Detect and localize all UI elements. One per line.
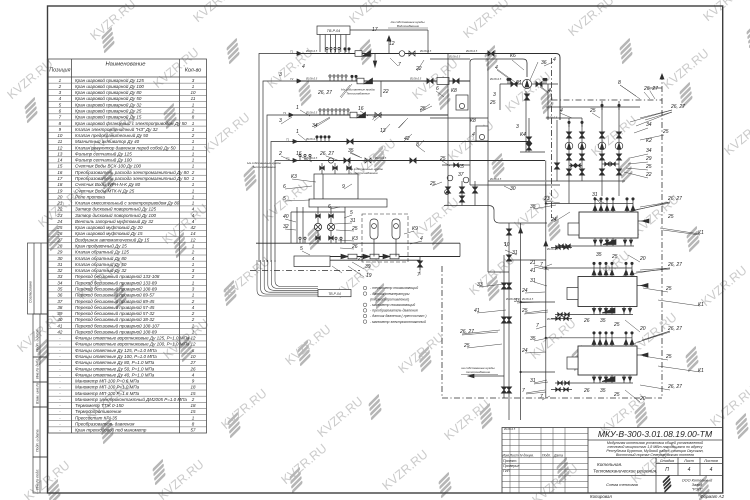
svg-text:25: 25 bbox=[56, 225, 63, 230]
svg-text:7: 7 bbox=[398, 62, 401, 68]
svg-text:(термосопротивление): (термосопротивление) bbox=[370, 297, 409, 301]
svg-text:Клапан регулятор давления пере: Клапан регулятор давления перед собой Ду… bbox=[75, 144, 176, 150]
svg-text:Ø108x3.5: Ø108x3.5 bbox=[503, 427, 516, 431]
svg-text:Счетчик Воды ВСХ-100 Ду 100: Счетчик Воды ВСХ-100 Ду 100 bbox=[75, 164, 141, 169]
svg-text:К2: К2 bbox=[646, 138, 652, 144]
svg-text:Фланцы ответные Ду 100, Р=1.0: Фланцы ответные Ду 100, Р=1.0 МПа bbox=[75, 354, 157, 359]
svg-text:1: 1 bbox=[192, 182, 195, 187]
svg-text:42: 42 bbox=[57, 329, 63, 334]
svg-text:25: 25 bbox=[521, 308, 528, 314]
svg-text:Магнитный активатор Ду 40: Магнитный активатор Ду 40 bbox=[75, 138, 140, 144]
svg-text:33: 33 bbox=[477, 282, 483, 288]
svg-text:-: - bbox=[59, 428, 61, 433]
svg-text:3: 3 bbox=[192, 286, 195, 291]
svg-text:-: - bbox=[59, 342, 61, 347]
svg-text:6: 6 bbox=[192, 348, 195, 353]
svg-text:21: 21 bbox=[529, 260, 536, 266]
svg-text:Кран продувочный Ду 25: Кран продувочный Ду 25 bbox=[75, 243, 127, 249]
svg-text:ООО Котельный: ООО Котельный bbox=[682, 479, 713, 483]
svg-text:39: 39 bbox=[57, 311, 63, 316]
svg-text:26, 27: 26, 27 bbox=[667, 384, 682, 390]
svg-text:2: 2 bbox=[191, 170, 195, 175]
svg-text:Переход бесшовный приварной 1: Переход бесшовный приварной 108-107 bbox=[75, 322, 160, 328]
svg-text:Переход бесшовный приварной 1: Переход бесшовный приварной 108-89 bbox=[75, 285, 157, 291]
svg-text:Изм.Лист: Изм.Лист bbox=[503, 454, 519, 458]
svg-text:2: 2 bbox=[191, 397, 195, 402]
svg-text:Ø108x3.5: Ø108x3.5 bbox=[521, 297, 534, 301]
svg-text:К8: К8 bbox=[470, 118, 476, 124]
svg-text:31: 31 bbox=[592, 192, 598, 198]
svg-text:30: 30 bbox=[57, 256, 63, 261]
svg-text:8: 8 bbox=[416, 142, 419, 148]
svg-text:26: 26 bbox=[189, 366, 196, 371]
svg-text:Ø108x3.5: Ø108x3.5 bbox=[305, 137, 318, 141]
svg-text:26, 27: 26, 27 bbox=[317, 90, 332, 96]
svg-text:-: - bbox=[59, 409, 61, 414]
svg-text:- датчик давления ( прессоста: - датчик давления ( прессостат ) bbox=[370, 314, 427, 318]
svg-text:Ø108x3.5: Ø108x3.5 bbox=[546, 317, 559, 321]
svg-text:Тепломеханические решения.: Тепломеханические решения. bbox=[593, 469, 657, 474]
svg-text:25: 25 bbox=[665, 286, 672, 292]
svg-text:К8: К8 bbox=[451, 88, 457, 94]
svg-text:35: 35 bbox=[57, 286, 63, 291]
svg-text:35: 35 bbox=[600, 318, 606, 324]
svg-text:16: 16 bbox=[358, 106, 364, 112]
svg-text:41: 41 bbox=[474, 308, 480, 314]
svg-text:Клапан обратный Ду 32: Клапан обратный Ду 32 bbox=[75, 267, 127, 273]
svg-text:35: 35 bbox=[600, 388, 606, 394]
svg-text:21: 21 bbox=[56, 201, 63, 206]
svg-text:Счетчик Воды WPH-N-K Ду 80: Счетчик Воды WPH-N-K Ду 80 bbox=[75, 182, 141, 187]
svg-text:Ø108x3.5: Ø108x3.5 bbox=[305, 77, 318, 81]
svg-text:25: 25 bbox=[662, 129, 669, 135]
svg-text:26, 27: 26, 27 bbox=[319, 151, 334, 157]
svg-text:Переход бесшовный приварной 1: Переход бесшовный приварной 108-89 bbox=[75, 328, 157, 334]
svg-text:Кран шаровой приварной Ду 25: Кран шаровой приварной Ду 25 bbox=[75, 107, 142, 113]
svg-text:Инв.№ подл.: Инв.№ подл. bbox=[36, 469, 40, 490]
svg-text:19: 19 bbox=[57, 188, 63, 193]
svg-text:23: 23 bbox=[56, 213, 63, 218]
svg-text:Восточный портал Северомуйског: Восточный портал Северомуйского тоннеля bbox=[616, 453, 694, 457]
svg-text:35: 35 bbox=[596, 252, 602, 258]
svg-text:26, 27: 26, 27 bbox=[670, 104, 685, 110]
svg-text:Наименование: Наименование bbox=[105, 62, 146, 68]
svg-text:-: - bbox=[59, 360, 61, 365]
svg-text:Переход бесшовный приварной 8: Переход бесшовный приварной 89-57 bbox=[75, 292, 155, 298]
svg-text:31: 31 bbox=[350, 218, 356, 224]
svg-text:22: 22 bbox=[645, 172, 652, 178]
svg-text:4: 4 bbox=[688, 467, 691, 473]
svg-text:1: 1 bbox=[296, 105, 299, 111]
svg-text:25: 25 bbox=[419, 106, 426, 112]
svg-text:К3: К3 bbox=[352, 236, 358, 242]
svg-text:1: 1 bbox=[192, 194, 195, 199]
svg-text:Согласовано: Согласовано bbox=[29, 281, 33, 303]
svg-text:57: 57 bbox=[190, 428, 196, 433]
svg-text:1: 1 bbox=[192, 188, 195, 193]
svg-text:21: 21 bbox=[515, 80, 522, 86]
svg-text:Кран шаровой приварной Ду 15: Кран шаровой приварной Ду 15 bbox=[75, 114, 142, 120]
svg-text:24: 24 bbox=[550, 217, 557, 223]
svg-text:Прессостат КРI-35: Прессостат КРI-35 bbox=[75, 415, 118, 420]
svg-text:7: 7 bbox=[540, 262, 543, 268]
svg-text:Манометр электроконтактный ДМ2: Манометр электроконтактный ДМ2005 Р=1.0 … bbox=[75, 396, 187, 402]
svg-text:7: 7 bbox=[522, 388, 525, 394]
svg-text:-: - bbox=[59, 415, 61, 420]
svg-text:Манометр МП-100 Р=1.6 МПа: Манометр МП-100 Р=1.6 МПа bbox=[75, 391, 140, 396]
svg-text:Кол-во: Кол-во bbox=[185, 68, 202, 74]
svg-text:-: - bbox=[59, 385, 61, 390]
svg-text:Ø108x3.5: Ø108x3.5 bbox=[305, 156, 318, 160]
svg-text:2: 2 bbox=[191, 317, 195, 322]
svg-text:ТВ-Р-04: ТВ-Р-04 bbox=[327, 29, 340, 33]
svg-text:7: 7 bbox=[540, 394, 543, 400]
svg-text:Ø108x3.5: Ø108x3.5 bbox=[465, 49, 478, 53]
svg-text:4: 4 bbox=[192, 372, 195, 377]
svg-text:Клапан смесительный с электроп: Клапан смесительный с электроприводом Ду… bbox=[75, 200, 180, 206]
svg-text:22: 22 bbox=[56, 207, 63, 212]
svg-text:Кран шаровой фланцевый с элект: Кран шаровой фланцевый с электроприводом… bbox=[75, 120, 187, 126]
svg-text:10: 10 bbox=[190, 354, 196, 359]
svg-text:- термометр показывающий: - термометр показывающий bbox=[370, 286, 418, 290]
svg-text:25: 25 bbox=[463, 343, 470, 349]
svg-text:Инв.№ дубл.: Инв.№ дубл. bbox=[36, 358, 40, 379]
svg-text:41: 41 bbox=[57, 323, 63, 328]
svg-text:Лист: Лист bbox=[683, 459, 694, 463]
svg-text:26, 27: 26, 27 bbox=[667, 196, 682, 202]
svg-text:4: 4 bbox=[420, 236, 423, 242]
svg-text:36: 36 bbox=[57, 293, 63, 298]
svg-text:6: 6 bbox=[59, 108, 62, 113]
svg-text:2: 2 bbox=[191, 133, 195, 138]
svg-text:Листов: Листов bbox=[703, 459, 718, 463]
svg-text:3: 3 bbox=[59, 90, 62, 95]
svg-text:31: 31 bbox=[530, 278, 536, 284]
svg-text:32: 32 bbox=[283, 224, 289, 230]
svg-text:8: 8 bbox=[618, 80, 621, 86]
svg-text:-: - bbox=[59, 379, 61, 384]
svg-text:3: 3 bbox=[516, 124, 519, 130]
svg-text:11: 11 bbox=[58, 139, 63, 144]
svg-text:Реле протока: Реле протока bbox=[75, 194, 105, 199]
svg-text:Водоснабжение: Водоснабжение bbox=[397, 24, 420, 28]
svg-text:Т1: Т1 bbox=[286, 138, 290, 142]
svg-text:34: 34 bbox=[646, 122, 652, 128]
svg-text:4: 4 bbox=[548, 88, 551, 94]
svg-text:22: 22 bbox=[382, 89, 389, 95]
svg-text:1: 1 bbox=[192, 84, 195, 89]
svg-text:К3: К3 bbox=[291, 174, 297, 180]
svg-text:40: 40 bbox=[283, 214, 289, 220]
svg-text:Кран шаровой приварной Ду 80: Кран шаровой приварной Ду 80 bbox=[75, 89, 142, 95]
svg-text:26: 26 bbox=[583, 318, 590, 324]
svg-text:Термометр ТТЖ 0-150: Термометр ТТЖ 0-150 bbox=[75, 403, 124, 408]
svg-text:Ø108x3.5: Ø108x3.5 bbox=[505, 297, 518, 301]
svg-text:1: 1 bbox=[192, 293, 195, 298]
svg-text:N докум.: N докум. bbox=[520, 454, 534, 458]
svg-text:К1: К1 bbox=[698, 302, 704, 308]
svg-text:13: 13 bbox=[380, 128, 386, 134]
svg-text:Фланцы ответные воротниковые Д: Фланцы ответные воротниковые Ду 125, Р=1… bbox=[75, 336, 190, 341]
svg-text:2: 2 bbox=[191, 274, 195, 279]
svg-text:13: 13 bbox=[57, 151, 63, 156]
svg-text:3: 3 bbox=[192, 268, 195, 273]
svg-text:24: 24 bbox=[56, 219, 63, 224]
svg-text:1: 1 bbox=[192, 127, 195, 132]
svg-text:7: 7 bbox=[372, 116, 375, 122]
svg-text:15: 15 bbox=[57, 164, 63, 169]
svg-text:3: 3 bbox=[279, 72, 282, 78]
svg-text:-: - bbox=[59, 348, 61, 353]
svg-text:36: 36 bbox=[541, 60, 547, 66]
svg-text:26: 26 bbox=[583, 388, 590, 394]
svg-text:Кран шаровой муфтовый Ду 20: Кран шаровой муфтовый Ду 20 bbox=[75, 224, 143, 230]
svg-text:Стадия: Стадия bbox=[660, 459, 674, 463]
svg-text:35: 35 bbox=[530, 336, 536, 342]
svg-text:14: 14 bbox=[190, 231, 196, 236]
svg-text:1: 1 bbox=[192, 201, 195, 206]
svg-text:Клапан предохранительный Ду 50: Клапан предохранительный Ду 50 bbox=[75, 132, 149, 138]
svg-text:1: 1 bbox=[192, 164, 195, 169]
svg-text:Теплоснабжение: Теплоснабжение bbox=[252, 165, 276, 169]
svg-text:33: 33 bbox=[57, 274, 63, 279]
svg-text:1: 1 bbox=[192, 415, 195, 420]
svg-text:Ø108x3.5: Ø108x3.5 bbox=[545, 116, 558, 120]
svg-text:- преобразователь давления: - преобразователь давления bbox=[370, 309, 418, 313]
svg-text:Воздушник автоматический Ду 15: Воздушник автоматический Ду 15 bbox=[75, 236, 150, 242]
svg-text:10: 10 bbox=[57, 133, 63, 138]
svg-text:25: 25 bbox=[667, 214, 674, 220]
svg-text:15: 15 bbox=[190, 409, 196, 414]
svg-text:1: 1 bbox=[192, 121, 195, 126]
svg-text:Формат А2: Формат А2 bbox=[700, 494, 725, 499]
svg-text:26, 27: 26, 27 bbox=[667, 262, 682, 268]
svg-text:4: 4 bbox=[710, 467, 713, 473]
svg-text:25: 25 bbox=[665, 354, 672, 360]
svg-text:Манометр МП-100 Р=1.0 МПа: Манометр МП-100 Р=1.0 МПа bbox=[75, 385, 140, 390]
svg-text:Фланцы ответные Ду 80, Р=1.0 М: Фланцы ответные Ду 80, Р=1.0 МПа bbox=[75, 360, 155, 365]
svg-text:25: 25 bbox=[489, 100, 496, 106]
svg-text:1: 1 bbox=[192, 158, 195, 163]
svg-text:34: 34 bbox=[57, 280, 63, 285]
svg-text:Взам. инв.№: Взам. инв.№ bbox=[36, 383, 40, 404]
svg-text:2: 2 bbox=[278, 151, 282, 157]
svg-text:4: 4 bbox=[495, 65, 498, 71]
svg-text:Термосопротивление: Термосопротивление bbox=[75, 409, 122, 414]
svg-text:Фильтр сетчатый Ду 125: Фильтр сетчатый Ду 125 bbox=[75, 150, 132, 156]
svg-text:1: 1 bbox=[192, 151, 195, 156]
svg-text:1: 1 bbox=[192, 262, 195, 267]
svg-text:26: 26 bbox=[56, 231, 63, 236]
svg-text:12: 12 bbox=[389, 41, 395, 47]
svg-text:6: 6 bbox=[283, 184, 286, 190]
svg-text:Ø108x3.5: Ø108x3.5 bbox=[305, 111, 318, 115]
svg-text:Копировал: Копировал bbox=[590, 494, 612, 499]
svg-text:Переход бесшовный приварной 3: Переход бесшовный приварной 38-32 bbox=[75, 316, 155, 322]
svg-text:26, 27: 26, 27 bbox=[459, 329, 474, 335]
svg-text:Подп. и дата: Подп. и дата bbox=[36, 330, 40, 353]
svg-text:Ø108x3.5: Ø108x3.5 bbox=[489, 177, 502, 181]
svg-text:17: 17 bbox=[57, 176, 63, 181]
svg-text:9: 9 bbox=[342, 184, 345, 190]
svg-text:Т1: Т1 bbox=[283, 111, 287, 115]
svg-text:МКУ-В-300-3.01.08.19.00-ТМ: МКУ-В-300-3.01.08.19.00-ТМ bbox=[598, 429, 713, 439]
svg-text:Фланцы ответные Ду 125, Р=1.0: Фланцы ответные Ду 125, Р=1.0 МПа bbox=[75, 348, 157, 353]
svg-text:18: 18 bbox=[57, 182, 63, 187]
svg-text:Кран шаровой муфтовый Ду 15: Кран шаровой муфтовый Ду 15 bbox=[75, 230, 143, 236]
svg-text:Подп.: Подп. bbox=[542, 454, 551, 458]
svg-text:Переход бесшовный приварной 5: Переход бесшовный приварной 57-32 bbox=[75, 310, 155, 316]
svg-text:-: - bbox=[59, 336, 61, 341]
svg-text:Преобразователь давления: Преобразователь давления bbox=[75, 422, 135, 427]
svg-text:К5: К5 bbox=[458, 164, 464, 170]
svg-text:теплоснабжение: теплоснабжение bbox=[466, 370, 491, 374]
svg-text:Т1: Т1 bbox=[290, 50, 294, 54]
svg-text:15: 15 bbox=[190, 391, 196, 396]
svg-text:2: 2 bbox=[58, 84, 62, 89]
svg-text:6: 6 bbox=[328, 204, 331, 210]
svg-text:Схема тепловая: Схема тепловая bbox=[606, 482, 639, 487]
svg-text:ГИП: ГИП bbox=[503, 469, 511, 473]
svg-text:24: 24 bbox=[521, 288, 528, 294]
svg-text:-: - bbox=[59, 422, 61, 427]
svg-text:Ø108x3.5: Ø108x3.5 bbox=[419, 49, 432, 53]
svg-text:25: 25 bbox=[613, 322, 620, 328]
svg-text:4: 4 bbox=[192, 305, 195, 310]
svg-text:12: 12 bbox=[57, 145, 63, 150]
svg-text:30: 30 bbox=[510, 186, 516, 192]
svg-text:7: 7 bbox=[536, 323, 539, 329]
svg-text:-: - bbox=[59, 397, 61, 402]
svg-text:27: 27 bbox=[56, 237, 63, 242]
svg-text:12: 12 bbox=[190, 342, 196, 347]
svg-text:1: 1 bbox=[192, 102, 195, 107]
svg-text:-: - bbox=[59, 403, 61, 408]
svg-text:1: 1 bbox=[192, 280, 195, 285]
svg-text:Затвор дисковый поворотный Ду: Затвор дисковый поворотный Ду 100 bbox=[75, 212, 157, 218]
svg-text:40: 40 bbox=[57, 317, 63, 322]
svg-text:24: 24 bbox=[521, 348, 528, 354]
svg-text:4: 4 bbox=[560, 108, 563, 114]
svg-text:2: 2 bbox=[191, 250, 195, 255]
svg-text:Проект.: Проект. bbox=[503, 459, 517, 463]
svg-text:4: 4 bbox=[553, 57, 556, 63]
svg-text:Проверил: Проверил bbox=[503, 464, 519, 468]
svg-text:П: П bbox=[665, 467, 669, 473]
svg-text:Фланцы ответные Ду 40, Р=1.0 М: Фланцы ответные Ду 40, Р=1.0 МПа bbox=[75, 372, 155, 377]
svg-text:Затвор дисковый поворотный Ду: Затвор дисковый поворотный Ду 125 bbox=[75, 206, 157, 212]
svg-text:25: 25 bbox=[645, 164, 652, 170]
svg-text:Переход бесшовный приварной 8: Переход бесшовный приварной 89-45 bbox=[75, 298, 155, 304]
svg-text:31: 31 bbox=[530, 378, 536, 384]
svg-text:28: 28 bbox=[56, 244, 63, 249]
svg-text:38: 38 bbox=[57, 305, 63, 310]
svg-text:Переход бесшовный приварной 5: Переход бесшовный приварной 57-45 bbox=[75, 304, 155, 310]
svg-text:5: 5 bbox=[350, 210, 353, 216]
svg-text:35: 35 bbox=[348, 148, 354, 154]
svg-text:2: 2 bbox=[191, 108, 195, 113]
svg-text:25: 25 bbox=[351, 226, 358, 232]
svg-text:3: 3 bbox=[192, 78, 195, 83]
svg-text:Клапан электромагнитный "НЗ" Д: Клапан электромагнитный "НЗ" Ду 32 bbox=[75, 126, 158, 132]
svg-text:-: - bbox=[59, 372, 61, 377]
svg-text:5: 5 bbox=[283, 196, 286, 202]
svg-text:4: 4 bbox=[472, 132, 475, 138]
svg-text:2: 2 bbox=[191, 299, 195, 304]
svg-text:8: 8 bbox=[192, 115, 195, 120]
svg-text:12: 12 bbox=[190, 336, 196, 341]
svg-text:Манометр МП-100 Р=0.6 МПа: Манометр МП-100 Р=0.6 МПа bbox=[75, 379, 140, 384]
svg-text:1: 1 bbox=[192, 244, 195, 249]
svg-text:-: - bbox=[59, 366, 61, 371]
svg-text:4: 4 bbox=[59, 96, 62, 101]
svg-text:25: 25 bbox=[439, 156, 446, 162]
svg-text:Вентиль запорный муфтовый Ду 3: Вентиль запорный муфтовый Ду 32 bbox=[75, 218, 154, 224]
svg-text:10: 10 bbox=[190, 90, 196, 95]
svg-text:-: - bbox=[59, 391, 61, 396]
svg-text:10: 10 bbox=[504, 242, 510, 248]
svg-text:32: 32 bbox=[57, 268, 63, 273]
svg-text:Фланцы ответные воротниковые Д: Фланцы ответные воротниковые Ду 100, Р=1… bbox=[75, 342, 190, 347]
svg-text:К6: К6 bbox=[510, 53, 516, 59]
svg-text:-: - bbox=[59, 354, 61, 359]
svg-text:34: 34 bbox=[312, 123, 318, 129]
svg-text:23: 23 bbox=[543, 196, 550, 202]
svg-text:2: 2 bbox=[191, 323, 195, 328]
svg-text:Ø108x3.5: Ø108x3.5 bbox=[305, 49, 318, 53]
svg-text:26, 27: 26, 27 bbox=[667, 326, 682, 332]
svg-text:Т2: Т2 bbox=[290, 77, 294, 81]
svg-text:Ø108x3.5: Ø108x3.5 bbox=[374, 156, 387, 160]
svg-text:29: 29 bbox=[56, 250, 63, 255]
svg-text:37: 37 bbox=[458, 172, 464, 178]
svg-text:5: 5 bbox=[300, 246, 303, 252]
svg-text:Счетчик Воды МТК-N Ду 25: Счетчик Воды МТК-N Ду 25 bbox=[75, 188, 135, 193]
svg-text:Преобразователь расхода электр: Преобразователь расхода электромагнитный… bbox=[75, 169, 189, 175]
svg-text:34: 34 bbox=[646, 148, 652, 154]
svg-text:18: 18 bbox=[190, 385, 196, 390]
svg-text:3: 3 bbox=[493, 92, 496, 98]
svg-text:Фланцы ответные Ду 50, Р=1.0 М: Фланцы ответные Ду 50, Р=1.0 МПа bbox=[75, 366, 155, 371]
svg-text:3: 3 bbox=[279, 118, 282, 124]
svg-text:7: 7 bbox=[417, 272, 420, 278]
svg-text:16: 16 bbox=[296, 151, 302, 157]
svg-text:39: 39 bbox=[365, 264, 371, 270]
svg-text:29: 29 bbox=[357, 256, 364, 262]
svg-text:4: 4 bbox=[192, 256, 195, 261]
svg-text:Ø108x3.5: Ø108x3.5 bbox=[546, 247, 559, 251]
svg-text:1: 1 bbox=[192, 139, 195, 144]
svg-text:25: 25 bbox=[611, 254, 618, 260]
svg-text:20: 20 bbox=[639, 396, 646, 402]
svg-text:5: 5 bbox=[59, 102, 62, 107]
svg-text:- датчик температуры: - датчик температуры bbox=[370, 292, 410, 296]
svg-text:35: 35 bbox=[530, 204, 536, 210]
svg-text:1: 1 bbox=[192, 145, 195, 150]
svg-text:41: 41 bbox=[530, 268, 536, 274]
svg-text:37: 37 bbox=[57, 299, 63, 304]
svg-text:К9: К9 bbox=[412, 226, 418, 232]
svg-text:16: 16 bbox=[57, 170, 63, 175]
svg-text:8: 8 bbox=[192, 422, 195, 427]
svg-text:ТВ-Р-04: ТВ-Р-04 bbox=[328, 292, 341, 296]
svg-text:6: 6 bbox=[436, 86, 439, 92]
svg-text:Котельная.: Котельная. bbox=[597, 462, 622, 467]
svg-text:Преобразователь расхода электр: Преобразователь расхода электромагнитный… bbox=[75, 175, 189, 181]
svg-text:1: 1 bbox=[296, 129, 299, 135]
svg-text:Ø108x3.5: Ø108x3.5 bbox=[409, 77, 422, 81]
svg-text:К1: К1 bbox=[698, 368, 704, 374]
